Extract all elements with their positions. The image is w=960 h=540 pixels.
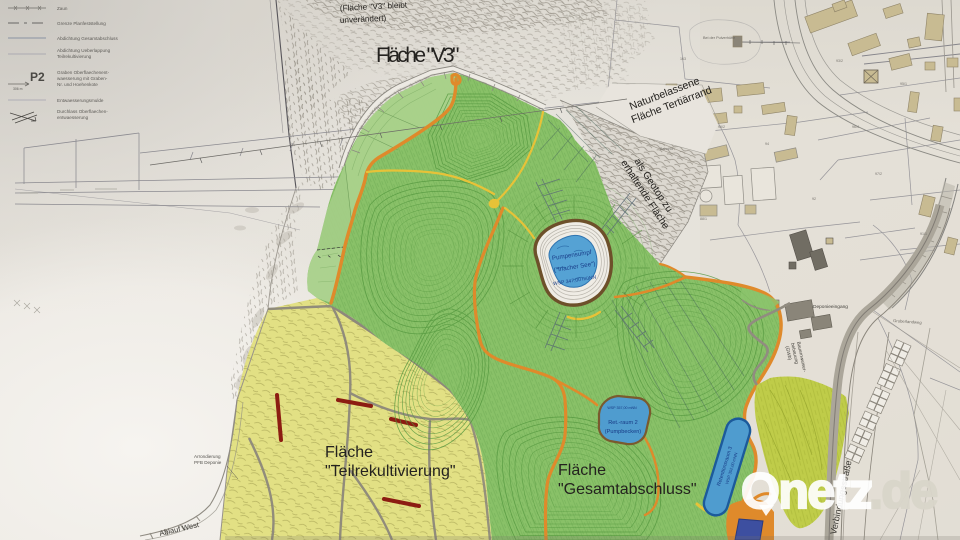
svg-text:Ret.-raum 2: Ret.-raum 2 xyxy=(608,420,638,426)
svg-text:Arrondierung: Arrondierung xyxy=(194,454,221,459)
svg-text:Abdichtung Gesamtabschluss: Abdichtung Gesamtabschluss xyxy=(57,36,118,41)
svg-text:163: 163 xyxy=(680,57,686,61)
svg-text:waesserung mit Graben-: waesserung mit Graben- xyxy=(57,76,108,81)
svg-text:92: 92 xyxy=(812,197,816,201)
svg-text:.de: .de xyxy=(869,463,937,519)
svg-text:Zaun: Zaun xyxy=(57,6,68,11)
svg-text:Graben Oberflaechenent-: Graben Oberflaechenent- xyxy=(57,70,110,75)
svg-text:Fläche: Fläche xyxy=(325,444,373,461)
svg-text:(Pumpbecken): (Pumpbecken) xyxy=(605,429,642,435)
svg-text:Onetz: Onetz xyxy=(741,463,873,519)
svg-text:91/1: 91/1 xyxy=(920,232,927,236)
svg-text:Bahnhof: Bahnhof xyxy=(660,147,673,151)
svg-text:93/2: 93/2 xyxy=(836,59,843,63)
svg-text:95/1: 95/1 xyxy=(900,82,907,86)
svg-text:"Teilrekultivierung": "Teilrekultivierung" xyxy=(325,463,456,480)
svg-text:Fläche: Fläche xyxy=(558,462,606,479)
svg-text:Nr. und Hoehenkote: Nr. und Hoehenkote xyxy=(57,82,98,87)
svg-text:96/2: 96/2 xyxy=(718,125,725,129)
svg-text:97/2: 97/2 xyxy=(875,172,882,176)
svg-text:PFB Deponie: PFB Deponie xyxy=(194,460,222,465)
svg-text:306 m: 306 m xyxy=(13,87,23,91)
svg-text:Bei der Pulverhütte: Bei der Pulverhütte xyxy=(703,36,735,40)
svg-text:Entwaesserungsmulde: Entwaesserungsmulde xyxy=(57,98,104,103)
svg-text:94: 94 xyxy=(765,142,769,146)
svg-text:Fläche "V3": Fläche "V3" xyxy=(376,44,459,67)
svg-text:"Gesamtabschluss": "Gesamtabschluss" xyxy=(558,481,697,498)
svg-text:88/1: 88/1 xyxy=(700,217,707,221)
svg-text:entwaesserung: entwaesserung xyxy=(57,115,89,120)
svg-text:96/4: 96/4 xyxy=(852,125,859,129)
svg-text:Abdichtung Ueberlappung: Abdichtung Ueberlappung xyxy=(57,48,111,53)
svg-text:Teilrekultivierung: Teilrekultivierung xyxy=(57,54,92,59)
svg-text:P2: P2 xyxy=(30,70,45,84)
svg-text:Durchlass Oberflaechen-: Durchlass Oberflaechen- xyxy=(57,109,108,114)
svg-text:Deponieeingang: Deponieeingang xyxy=(813,304,848,310)
svg-text:WSP 357,00 mNN: WSP 357,00 mNN xyxy=(607,406,637,410)
svg-text:Grenze Planfeststellung: Grenze Planfeststellung xyxy=(57,21,106,26)
